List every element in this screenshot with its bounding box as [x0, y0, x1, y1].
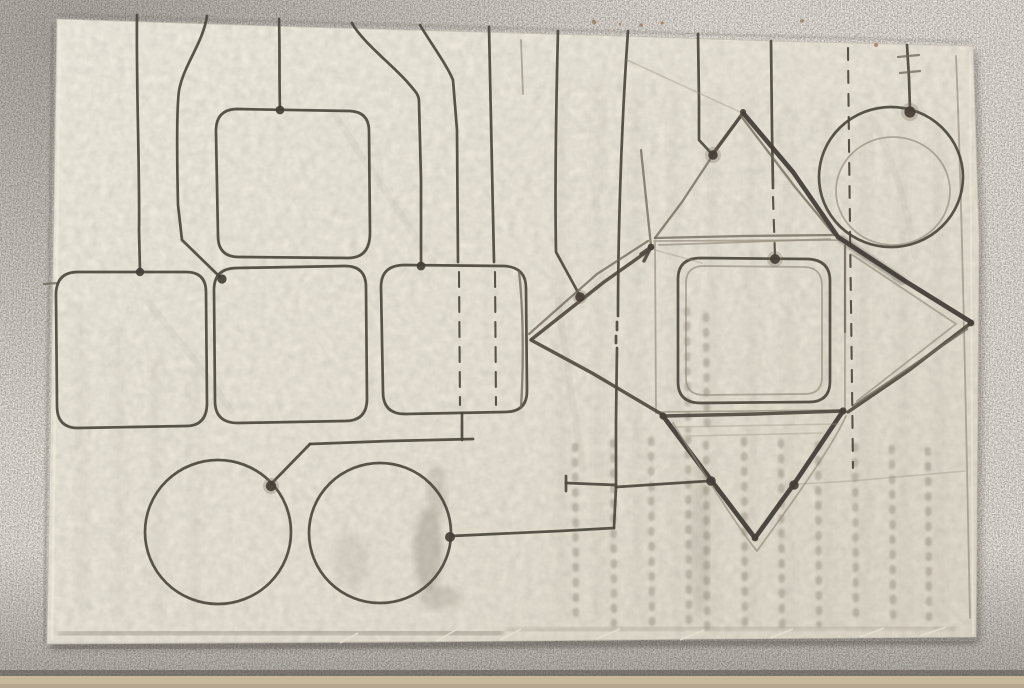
table-edge-strip-shade — [0, 684, 1024, 688]
paper-noise — [47, 19, 979, 644]
photo-svg — [0, 0, 1024, 688]
junction-dot-square-e — [770, 254, 780, 264]
vertex-blob-invtri-apex — [752, 535, 759, 542]
smudge-bottom-right-band — [505, 627, 956, 631]
junction-dot-square-c — [217, 274, 226, 283]
feeder-line-3 — [279, 19, 280, 109]
vertex-blob-apex — [740, 109, 746, 115]
vertex-blob-right — [968, 320, 975, 327]
junction-dot-circle-f — [266, 481, 276, 491]
junction-dot-circle-g — [445, 532, 455, 542]
cardboard-sketch-photo — [0, 0, 1024, 688]
vertex-blob-invtri-topleft — [659, 412, 666, 419]
junction-dot-square-d — [417, 262, 426, 271]
smudge-bottom-left-band — [62, 632, 500, 635]
smudge-circle-g-bottom — [420, 586, 460, 610]
left-edge-tick — [44, 283, 58, 284]
junction-dot-invtri-left — [706, 476, 716, 486]
junction-dot-diamond-edge — [575, 292, 585, 302]
junction-dot-square-b — [136, 268, 144, 276]
junction-dot-circle-h — [904, 106, 915, 117]
smudge-circle-g-left — [334, 532, 370, 588]
table-edge-shadow-line — [0, 670, 1024, 677]
junction-dot-invtri-right — [789, 480, 799, 490]
smudge-center-column — [691, 460, 709, 620]
junction-dot-square-a — [276, 106, 285, 115]
junction-dot-triangle-slope — [708, 150, 718, 160]
vertex-blob-invtri-topright — [839, 407, 846, 414]
smudge-circle-g-right — [414, 508, 442, 592]
vertex-blob-junction — [648, 244, 655, 251]
